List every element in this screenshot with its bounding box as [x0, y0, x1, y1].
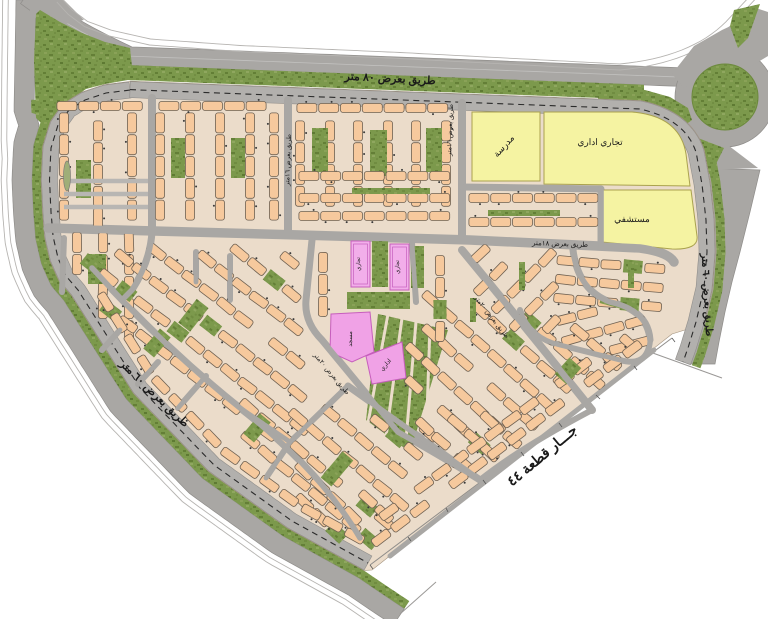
svg-text:تجاري اداري: تجاري اداري [577, 137, 623, 148]
svg-text:مستشفي: مستشفي [614, 214, 650, 224]
svg-text:تجاري: تجاري [394, 260, 401, 274]
svg-text:تجاري: تجاري [355, 257, 362, 271]
svg-text:مسجد: مسجد [348, 331, 354, 347]
